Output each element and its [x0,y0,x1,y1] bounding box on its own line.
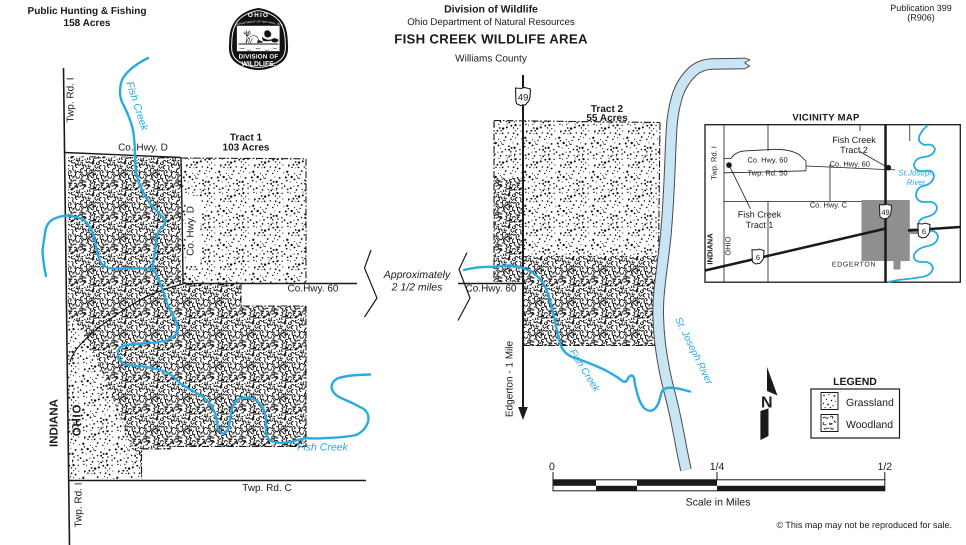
svg-text:Scale in Miles: Scale in Miles [686,497,751,509]
svg-text:Edgerton - 1 Mile: Edgerton - 1 Mile [505,340,516,417]
svg-text:Woodland: Woodland [846,419,893,431]
svg-text:Publication 399: Publication 399 [890,3,952,13]
svg-text:103 Acres: 103 Acres [223,143,270,154]
svg-text:Public Hunting & Fishing: Public Hunting & Fishing [28,6,147,17]
svg-text:Fish Creek: Fish Creek [832,135,876,145]
svg-text:2 1/2 miles: 2 1/2 miles [391,282,444,294]
svg-text:INDIANA: INDIANA [49,399,61,447]
svg-text:(R906): (R906) [907,13,935,23]
svg-text:St.Joseph: St.Joseph [898,169,934,178]
svg-text:River: River [907,178,926,187]
svg-text:55 Acres: 55 Acres [586,113,628,124]
svg-text:OHIO: OHIO [72,404,84,437]
svg-text:6: 6 [756,253,760,262]
svg-text:Approximately: Approximately [383,269,451,281]
svg-text:Co. Hwy. C: Co. Hwy. C [810,201,848,210]
svg-text:Twp. Rd. I: Twp. Rd. I [66,77,77,122]
svg-text:© This map may not be reproduc: © This map may not be reproduced for sal… [776,520,952,530]
svg-text:Twp. Rd. I: Twp. Rd. I [74,482,85,527]
svg-text:Twp. Rd. C: Twp. Rd. C [242,483,291,494]
svg-text:Grassland: Grassland [846,397,894,409]
svg-text:LEGEND: LEGEND [833,376,877,388]
svg-text:INDIANA: INDIANA [706,233,715,265]
svg-text:1/4: 1/4 [710,461,725,473]
svg-text:Co. Hwy. 60: Co. Hwy. 60 [830,160,870,169]
svg-text:49: 49 [881,208,889,217]
svg-text:Twp. Rd. 50: Twp. Rd. 50 [747,169,787,178]
svg-text:Williams County: Williams County [455,54,527,65]
svg-text:Twp. Rd. I: Twp. Rd. I [710,146,719,180]
svg-text:OHIO: OHIO [724,236,733,255]
svg-text:Co.Hwy. 60: Co.Hwy. 60 [466,284,517,295]
svg-text:Co. Hwy. D: Co. Hwy. D [118,143,168,154]
svg-text:VICINITY MAP: VICINITY MAP [792,113,860,124]
svg-text:Ohio Department of Natural Res: Ohio Department of Natural Resources [407,17,575,28]
svg-text:EDGERTON: EDGERTON [832,262,876,269]
svg-text:Fish Creek: Fish Creek [738,210,782,220]
svg-text:FISH CREEK WILDLIFE AREA: FISH CREEK WILDLIFE AREA [394,32,588,47]
svg-text:Co. Hwy. D: Co. Hwy. D [186,206,197,256]
svg-text:Co.Hwy. 60: Co.Hwy. 60 [288,284,339,295]
svg-text:49: 49 [518,93,529,104]
svg-text:OHIO: OHIO [248,12,269,19]
svg-text:158 Acres: 158 Acres [64,18,111,29]
svg-text:DIVISION OF: DIVISION OF [239,53,279,60]
svg-text:WILDLIFE.: WILDLIFE. [241,61,275,68]
svg-text:Co. Hwy. 60: Co. Hwy. 60 [747,156,787,165]
svg-text:Tract 1: Tract 1 [746,220,774,230]
svg-text:6: 6 [922,227,926,236]
svg-text:Fish Creek: Fish Creek [297,442,349,454]
svg-text:Division of Wildlife: Division of Wildlife [444,4,538,16]
svg-text:1/2: 1/2 [877,461,892,473]
svg-text:Tract 2: Tract 2 [840,145,868,155]
svg-text:0: 0 [549,461,555,473]
